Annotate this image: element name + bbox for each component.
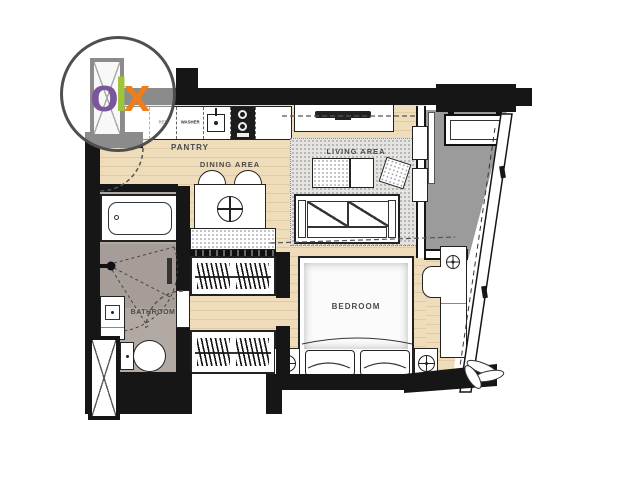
washer: WASHER [177, 107, 204, 139]
clothes-hangers-icon [197, 263, 230, 289]
wardrobe [190, 256, 276, 296]
bed-pillow [360, 350, 410, 376]
coffee-table [312, 158, 374, 188]
ac-unit-inner [450, 120, 500, 140]
dresser [190, 228, 276, 250]
clothes-hangers-icon [197, 338, 230, 366]
toilet-tank [120, 342, 134, 370]
bathtub-drain [114, 215, 119, 220]
bed [298, 256, 414, 382]
shower-towel-bar [167, 258, 172, 284]
wall-top-right [436, 84, 516, 112]
side-table [350, 158, 374, 188]
tv-stand [335, 118, 351, 120]
sofa-cushion [348, 201, 389, 227]
pantry-label: PANTRY [146, 143, 234, 153]
sink-faucet-icon [215, 108, 217, 116]
wall-bathroom-top [100, 184, 178, 192]
plant-icon [462, 357, 505, 390]
stove-burner-icon [238, 122, 247, 131]
kitchen-sink [204, 107, 231, 139]
vanity-faucet-icon [111, 311, 114, 314]
sofa-cushion [307, 201, 348, 227]
balcony-window-pillar [428, 112, 435, 184]
bathtub [100, 194, 180, 242]
bedroom-label: BEDROOM [300, 302, 412, 312]
toilet-bowl [133, 340, 166, 372]
wall-top-right-stub [510, 88, 532, 106]
living-area-label: LIVING AREA [308, 147, 404, 157]
window-mullion [499, 166, 506, 179]
desk-chair [422, 266, 441, 298]
bed-pillow [305, 350, 355, 376]
wardrobe [190, 330, 276, 374]
wall-step [266, 374, 282, 414]
kitchen-cabinet [255, 107, 291, 139]
desk-lamp-icon [446, 255, 460, 269]
stove [231, 107, 255, 139]
wall-closet-bottom-right [276, 326, 290, 376]
desk [440, 246, 467, 358]
clothes-hangers-icon [236, 263, 269, 289]
table-centerpiece-icon [217, 196, 243, 222]
shaft-x-icon [92, 340, 116, 416]
washer-label: WASHER [181, 121, 200, 125]
wall-top-stub [176, 68, 198, 90]
sofa-armrest [298, 200, 306, 238]
stove-panel [237, 133, 249, 137]
sofa [294, 194, 400, 244]
olx-letter-x: x [124, 71, 146, 118]
bathroom-label: BATHROOM [118, 308, 188, 318]
sliding-door-panel [412, 168, 428, 202]
ac-unit [444, 114, 506, 146]
tv-console [294, 104, 394, 132]
toilet-flush-icon [126, 355, 129, 358]
wall-bathroom-right-upper [176, 186, 190, 290]
wall-bathroom-right-lower [176, 326, 190, 372]
dining-area-label: DINING AREA [184, 160, 276, 170]
ottoman [312, 158, 350, 188]
sink-drain [214, 121, 218, 125]
floor-plan-image: REF WASHER PANTRY DINING AREA LIVING ARE… [0, 0, 640, 480]
wall-bottom-bedroom [272, 374, 422, 390]
tv-icon [315, 111, 371, 118]
lamp-icon [418, 355, 435, 372]
desk-shelf-line [441, 303, 466, 304]
olx-letter-o: o [90, 71, 115, 118]
bathroom-vanity [100, 296, 125, 340]
ac-foot [448, 112, 454, 116]
stove-burner-icon [238, 110, 247, 119]
olx-watermark-logo: o l x [60, 36, 176, 152]
sofa-armrest [388, 200, 396, 238]
sliding-door-panel [412, 126, 428, 160]
clothes-hangers-icon [236, 338, 269, 366]
olx-letter-l: l [115, 71, 124, 118]
ac-foot [496, 112, 502, 116]
window-mullion [481, 286, 488, 299]
sofa-backrest [307, 227, 387, 238]
shaft-bottom-left [88, 336, 120, 420]
wall-closet-top-right [276, 252, 290, 298]
vanity-divider [101, 327, 124, 328]
